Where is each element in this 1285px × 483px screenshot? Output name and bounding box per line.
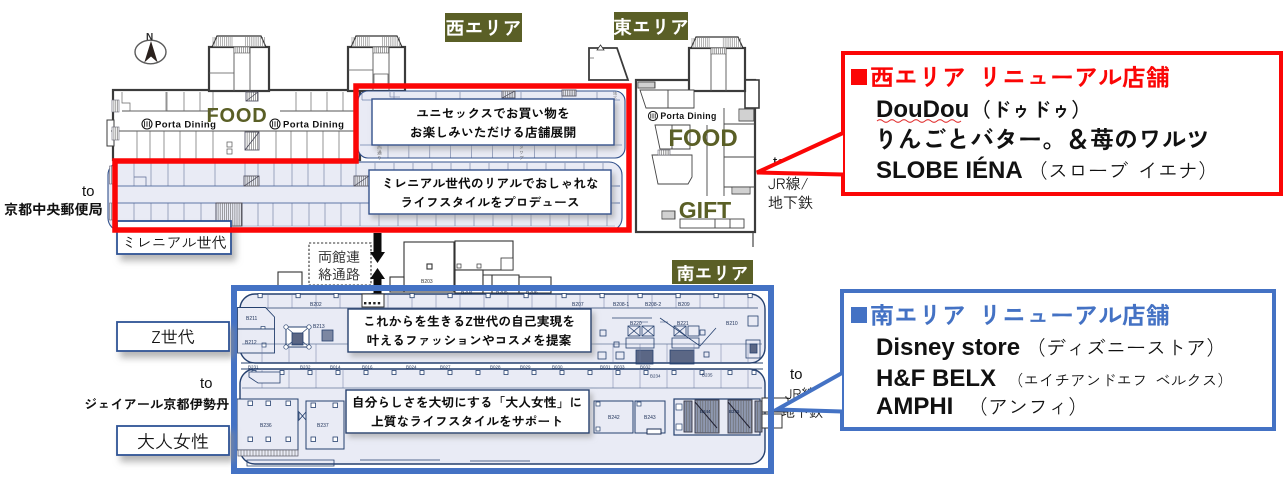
- svg-text:B232: B232: [300, 365, 311, 370]
- svg-text:B211: B211: [246, 316, 258, 322]
- svg-text:B212: B212: [245, 340, 257, 346]
- svg-text:B029: B029: [520, 365, 531, 370]
- svg-text:B202: B202: [310, 302, 322, 308]
- svg-text:Porta Dining: Porta Dining: [660, 111, 716, 121]
- svg-text:B221: B221: [677, 321, 689, 327]
- svg-text:B208-1: B208-1: [613, 302, 629, 308]
- svg-text:B024: B024: [406, 365, 417, 370]
- svg-text:B236: B236: [260, 423, 272, 429]
- svg-text:B030: B030: [552, 365, 563, 370]
- svg-text:B031: B031: [600, 365, 611, 370]
- svg-text:to: to: [82, 183, 95, 200]
- svg-text:B207: B207: [572, 302, 584, 308]
- svg-text:B014: B014: [330, 365, 341, 370]
- svg-text:B028: B028: [490, 365, 501, 370]
- svg-text:B213: B213: [313, 324, 325, 330]
- svg-text:to: to: [200, 375, 213, 392]
- svg-text:DouDou: DouDou: [876, 96, 969, 123]
- svg-text:AMPHI: AMPHI: [876, 393, 953, 420]
- svg-text:B016: B016: [362, 365, 373, 370]
- svg-text:to: to: [790, 366, 803, 383]
- svg-text:B210: B210: [726, 321, 738, 327]
- svg-text:B231: B231: [248, 365, 259, 370]
- svg-text:B235: B235: [702, 373, 713, 378]
- svg-text:B244: B244: [700, 409, 711, 414]
- svg-text:B203: B203: [421, 279, 433, 285]
- svg-text:B208-2: B208-2: [645, 302, 661, 308]
- svg-text:B243: B243: [644, 415, 656, 421]
- svg-text:Porta Dining: Porta Dining: [155, 120, 216, 131]
- svg-text:B209: B209: [678, 302, 690, 308]
- svg-text:B033: B033: [614, 365, 625, 370]
- svg-text:B245: B245: [729, 409, 740, 414]
- svg-text:Porta Dining: Porta Dining: [283, 120, 344, 131]
- svg-text:H&F BELX: H&F BELX: [876, 365, 996, 392]
- svg-text:N: N: [146, 32, 153, 43]
- svg-text:B242: B242: [608, 415, 620, 421]
- svg-text:FOOD: FOOD: [668, 125, 737, 152]
- svg-text:B027: B027: [440, 365, 451, 370]
- svg-text:B032: B032: [640, 365, 651, 370]
- svg-text:SLOBE IÉNA: SLOBE IÉNA: [876, 156, 1023, 184]
- svg-text:B237: B237: [317, 423, 329, 429]
- svg-text:B234: B234: [650, 374, 661, 379]
- svg-text:B220: B220: [630, 321, 642, 327]
- svg-text:Disney store: Disney store: [876, 334, 1020, 361]
- svg-text:GIFT: GIFT: [679, 197, 731, 223]
